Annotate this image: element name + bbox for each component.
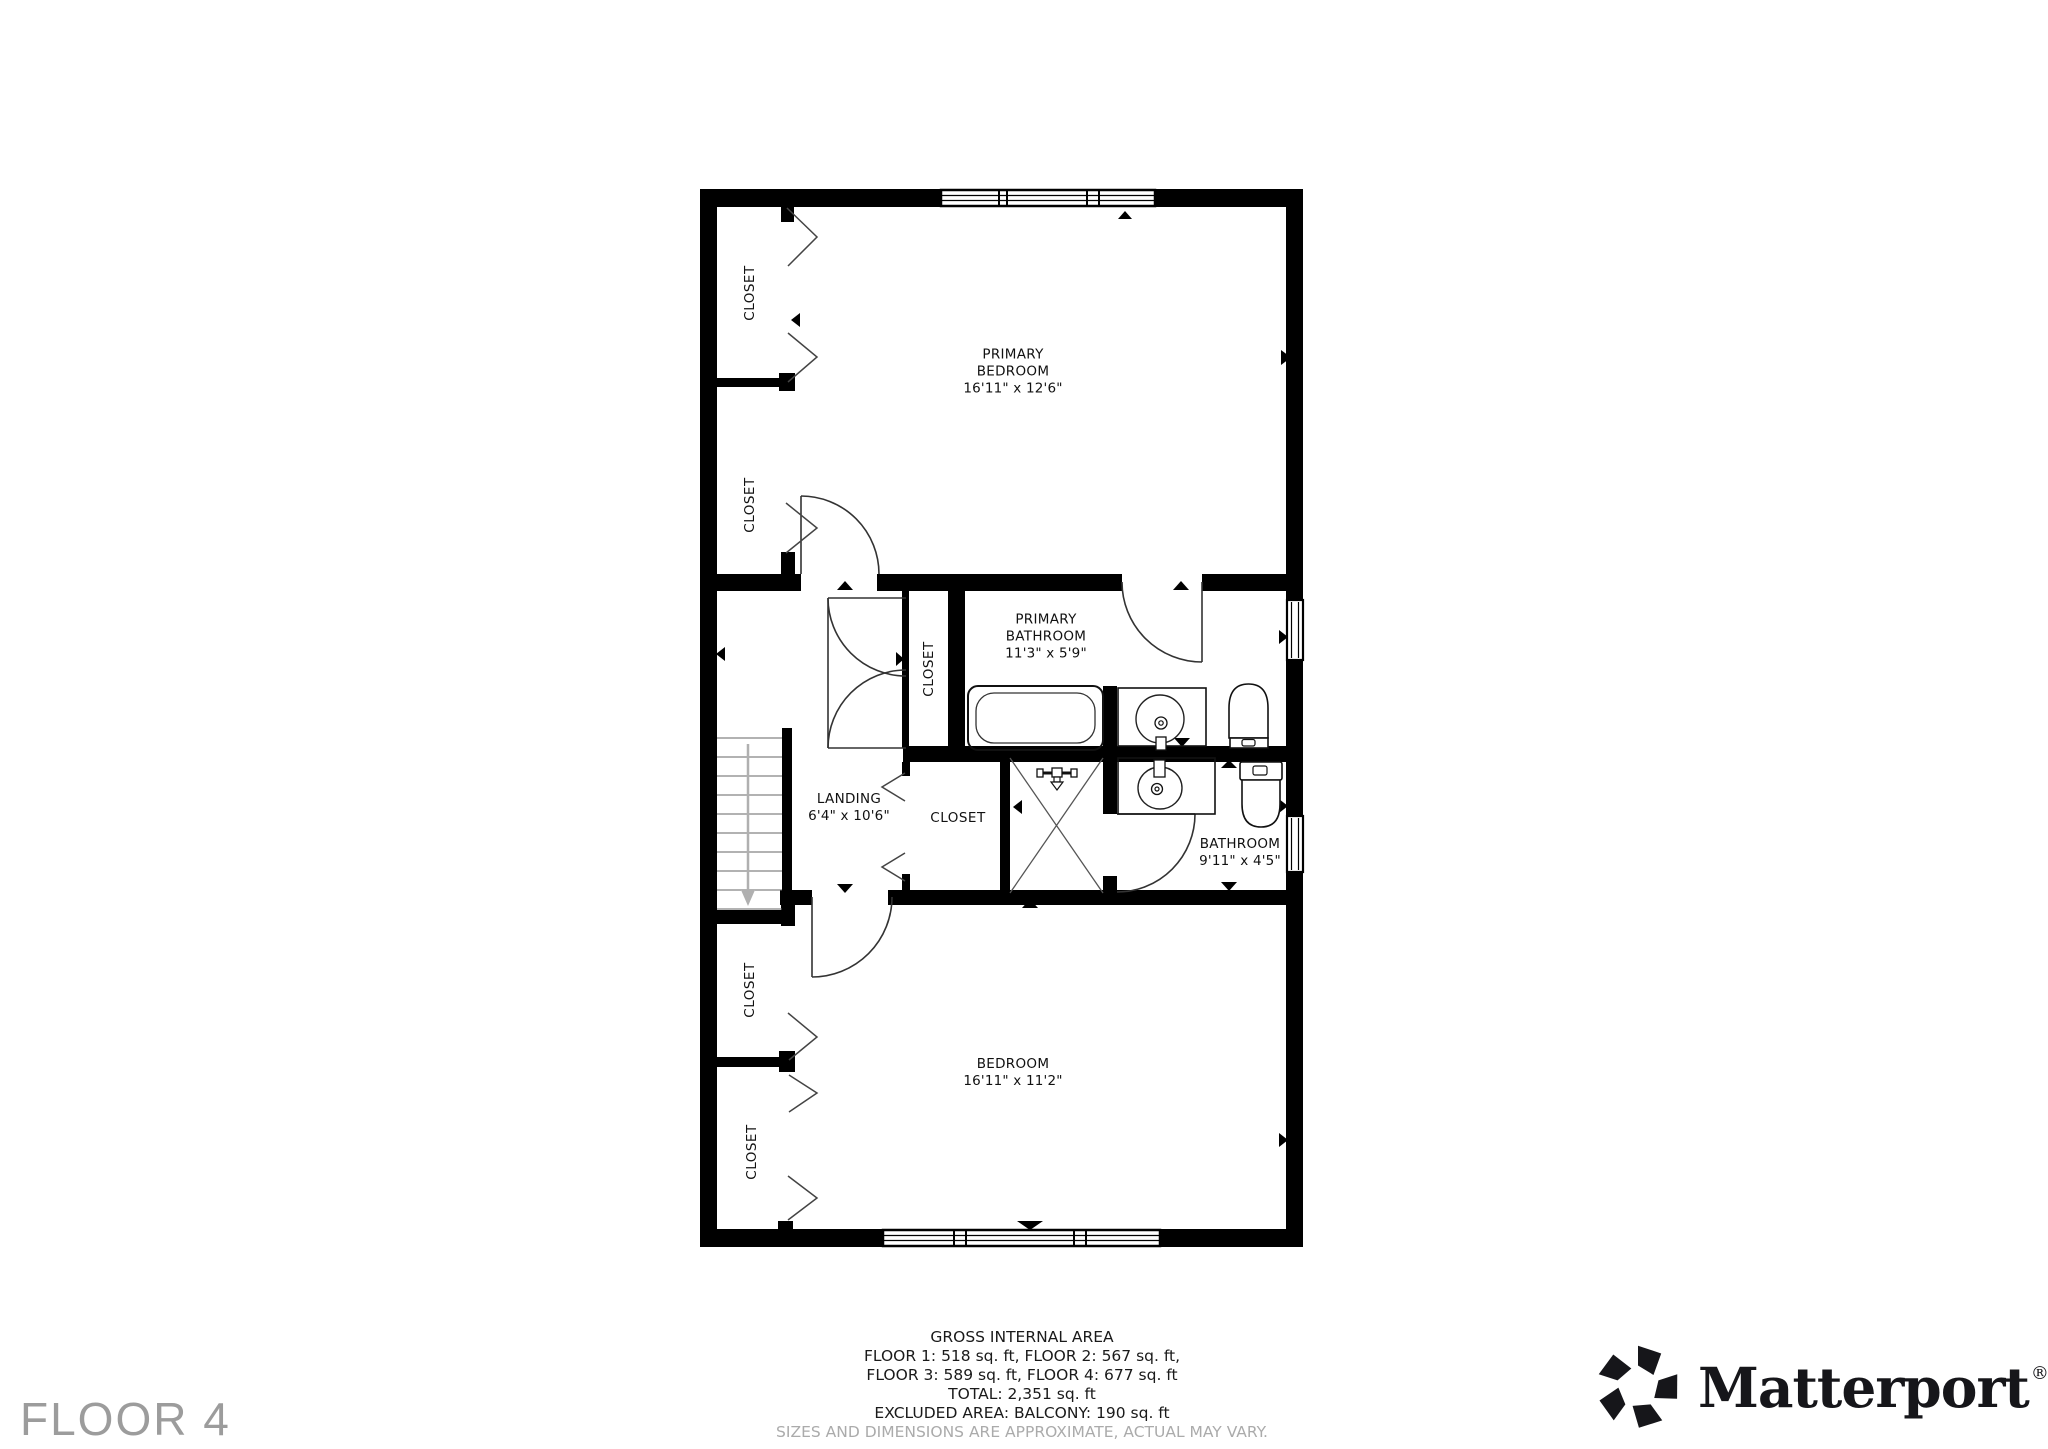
window-right-bathroom-primary [1287,600,1303,660]
area-summary-title: GROSS INTERNAL AREA [776,1328,1268,1347]
area-summary-excluded: EXCLUDED AREA: BALCONY: 190 sq. ft [776,1404,1268,1423]
stair-rail [782,728,792,912]
floor-title: FLOOR 4 [20,1392,231,1446]
toilet-primary [1229,684,1268,748]
room-label-landing: LANDING 6'4" x 10'6" [808,791,890,825]
window-top [941,190,1155,206]
door-bedroom [812,897,892,977]
area-summary-disclaimer: SIZES AND DIMENSIONS ARE APPROXIMATE, AC… [776,1423,1268,1442]
stairs [717,728,792,912]
vanity-sink-bathroom [1118,758,1215,814]
vanity-sink-primary [1118,688,1206,750]
area-summary-total: TOTAL: 2,351 sq. ft [776,1385,1268,1404]
closet-label-2: CLOSET [742,477,758,532]
room-label-primary-bedroom: PRIMARY BEDROOM 16'11" x 12'6" [963,347,1062,398]
door-bathroom [1117,814,1195,892]
door-primary-bathroom [1122,582,1202,662]
closet-label-hall: CLOSET [921,641,937,696]
area-summary-floors-3-4: FLOOR 3: 589 sq. ft, FLOOR 4: 677 sq. ft [776,1366,1268,1385]
window-bottom [883,1230,1160,1246]
closet-label-4: CLOSET [744,1124,760,1179]
registered-mark: ® [2031,1363,2048,1384]
room-label-bedroom: BEDROOM 16'11" x 11'2" [963,1056,1062,1090]
matterport-wordmark: Matterport® [1698,1355,2048,1420]
room-label-primary-bathroom: PRIMARY BATHROOM 11'3" x 5'9" [1005,612,1087,663]
matterport-logo: Matterport® [1594,1344,2048,1430]
bifold-closet-4b [788,1176,817,1220]
bifold-closet-4a [789,1075,817,1112]
closet-label-1: CLOSET [742,265,758,320]
door-primary-bedroom [801,496,879,574]
bathtub [968,686,1103,750]
stairs-down-arrow [741,744,755,906]
room-label-bathroom: BATHROOM 9'11" x 4'5" [1199,836,1281,870]
shower [1010,758,1103,893]
area-summary: GROSS INTERNAL AREA FLOOR 1: 518 sq. ft,… [776,1328,1268,1442]
closet-bifold-doors [786,208,905,1220]
window-right-bathroom [1287,816,1303,872]
door-hall-closet-double [828,598,906,748]
toilet-bathroom [1240,762,1282,827]
shower-head-icon [1037,768,1077,790]
area-summary-floors-1-2: FLOOR 1: 518 sq. ft, FLOOR 2: 567 sq. ft… [776,1347,1268,1366]
matterport-pinwheel-icon [1594,1344,1682,1430]
bifold-hall-closet-b [882,853,905,881]
closet-label-3: CLOSET [742,962,758,1017]
floorplan-drawing [695,185,1310,1250]
floorplan-page: PRIMARY BEDROOM 16'11" x 12'6" PRIMARY B… [0,0,2048,1449]
closet-label-middle: CLOSET [930,810,985,826]
